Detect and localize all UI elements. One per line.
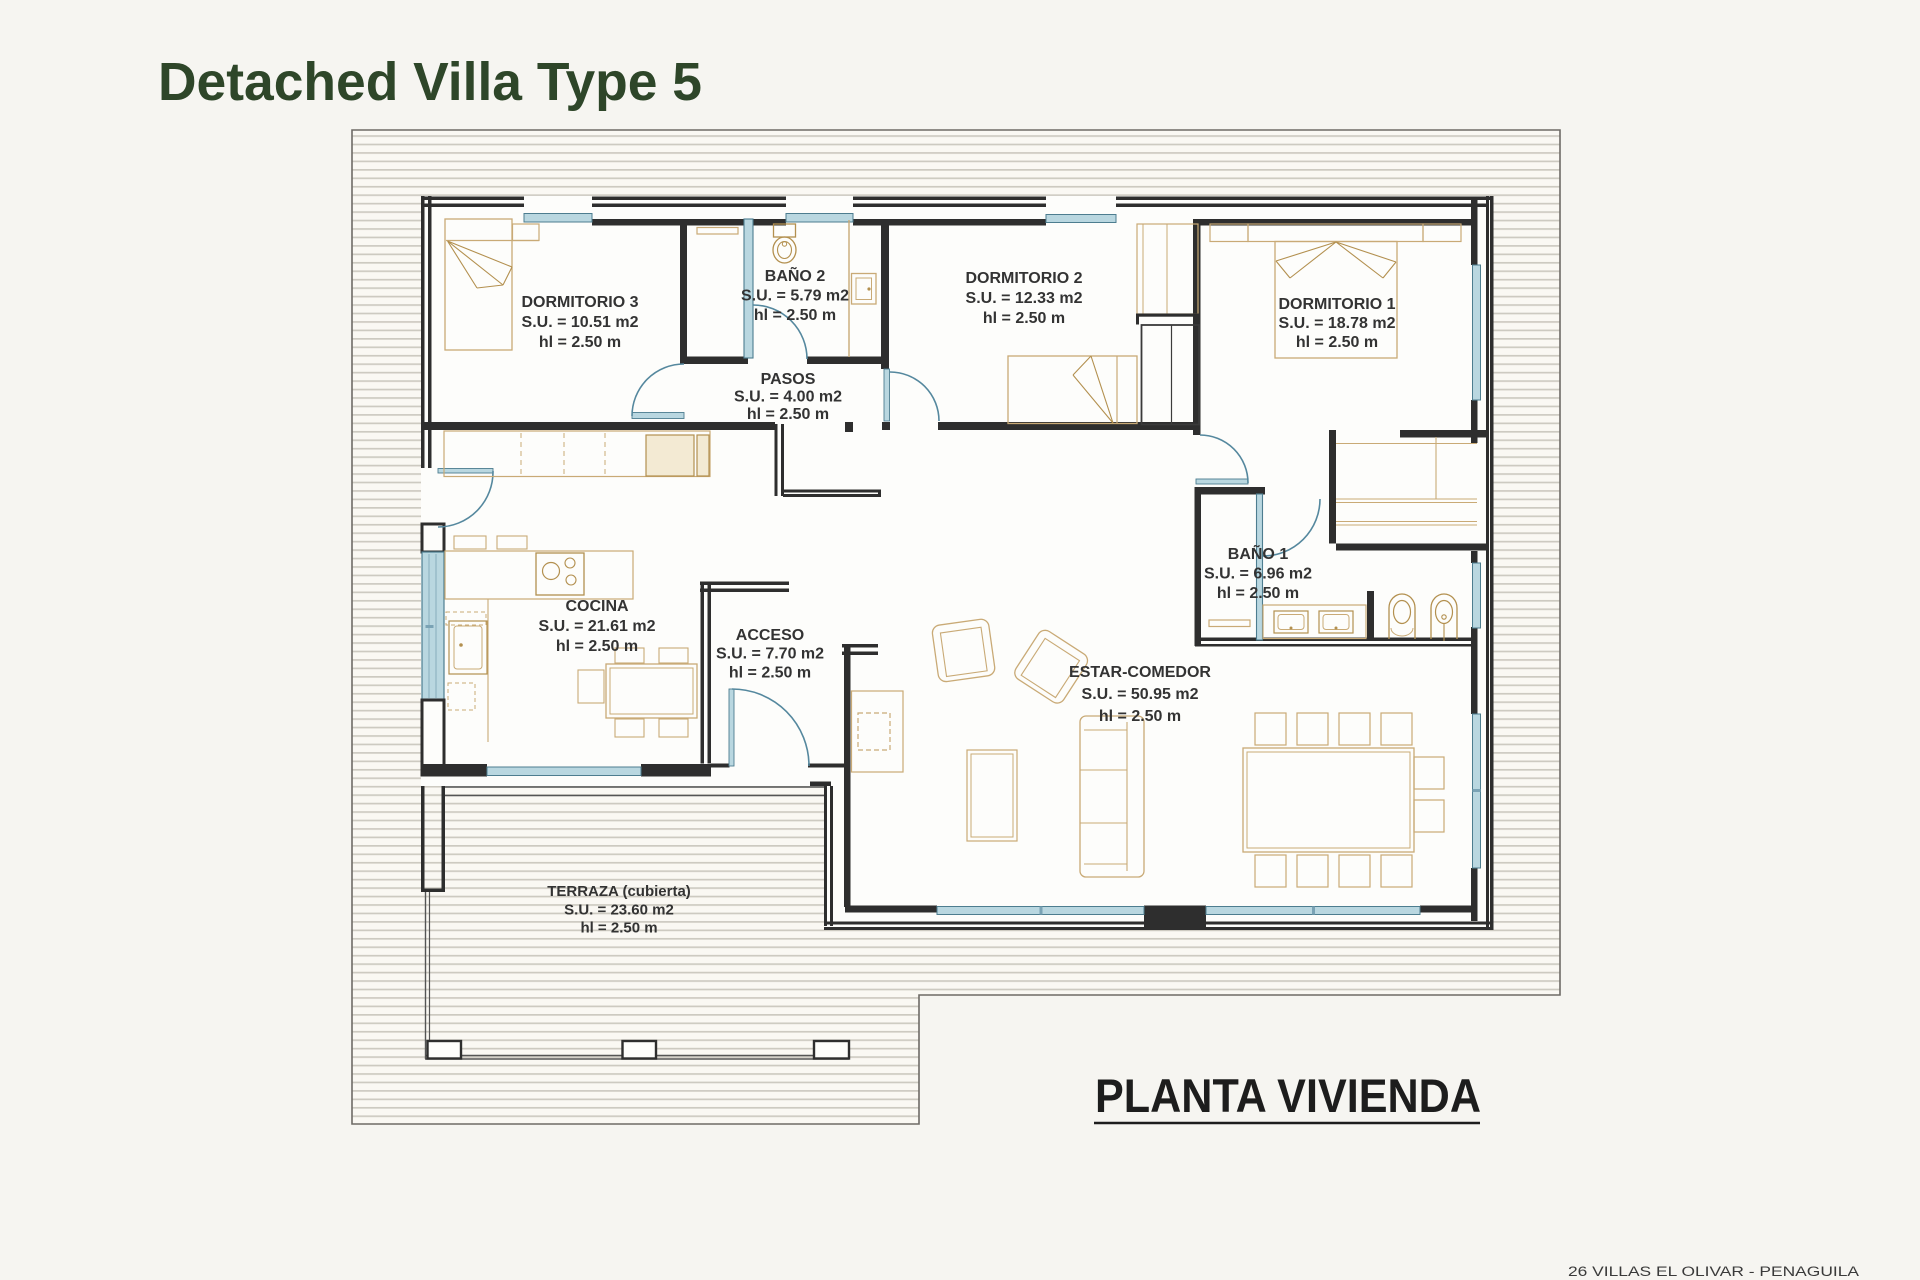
svg-text:COCINA: COCINA [565,598,629,615]
svg-text:hl = 2.50 m: hl = 2.50 m [1296,334,1378,351]
svg-text:hl = 2.50 m: hl = 2.50 m [983,310,1065,327]
svg-text:BAÑO 1: BAÑO 1 [1228,543,1289,563]
svg-text:S.U. = 21.61 m2: S.U. = 21.61 m2 [539,618,656,635]
svg-text:hl = 2.50 m: hl = 2.50 m [580,920,657,937]
svg-text:hl = 2.50 m: hl = 2.50 m [539,334,621,351]
svg-text:PASOS: PASOS [761,371,816,388]
svg-text:hl = 2.50 m: hl = 2.50 m [729,664,811,681]
svg-text:26 VILLAS EL OLIVAR - PENAGUI: 26 VILLAS EL OLIVAR - PENAGUILA [1568,1264,1859,1279]
svg-text:hl = 2.50 m: hl = 2.50 m [754,307,836,324]
svg-text:DORMITORIO 3: DORMITORIO 3 [521,294,638,311]
svg-text:S.U. = 7.70 m2: S.U. = 7.70 m2 [716,646,824,663]
svg-text:S.U. = 50.95 m2: S.U. = 50.95 m2 [1082,686,1199,703]
svg-text:S.U. = 6.96 m2: S.U. = 6.96 m2 [1204,566,1312,583]
svg-text:S.U. = 12.33 m2: S.U. = 12.33 m2 [966,290,1083,307]
svg-text:hl = 2.50 m: hl = 2.50 m [556,638,638,655]
svg-text:ESTAR-COMEDOR: ESTAR-COMEDOR [1069,664,1211,681]
svg-text:hl = 2.50 m: hl = 2.50 m [747,406,829,423]
svg-text:TERRAZA (cubierta): TERRAZA (cubierta) [547,883,691,900]
svg-text:ACCESO: ACCESO [736,627,804,644]
svg-text:hl = 2.50 m: hl = 2.50 m [1099,708,1181,725]
svg-text:S.U. = 18.78 m2: S.U. = 18.78 m2 [1279,315,1396,332]
svg-text:BAÑO 2: BAÑO 2 [765,265,826,285]
svg-text:S.U. = 23.60 m2: S.U. = 23.60 m2 [564,901,674,918]
svg-text:S.U. = 4.00 m2: S.U. = 4.00 m2 [734,389,842,406]
svg-text:S.U. = 5.79 m2: S.U. = 5.79 m2 [741,288,849,305]
svg-text:DORMITORIO 2: DORMITORIO 2 [965,270,1082,287]
svg-text:S.U. = 10.51 m2: S.U. = 10.51 m2 [522,314,639,331]
svg-text:hl = 2.50 m: hl = 2.50 m [1217,585,1299,602]
svg-text:Detached Villa Type 5: Detached Villa Type 5 [158,52,702,112]
svg-text:DORMITORIO 1: DORMITORIO 1 [1278,296,1395,313]
svg-text:PLANTA VIVIENDA: PLANTA VIVIENDA [1095,1069,1481,1122]
